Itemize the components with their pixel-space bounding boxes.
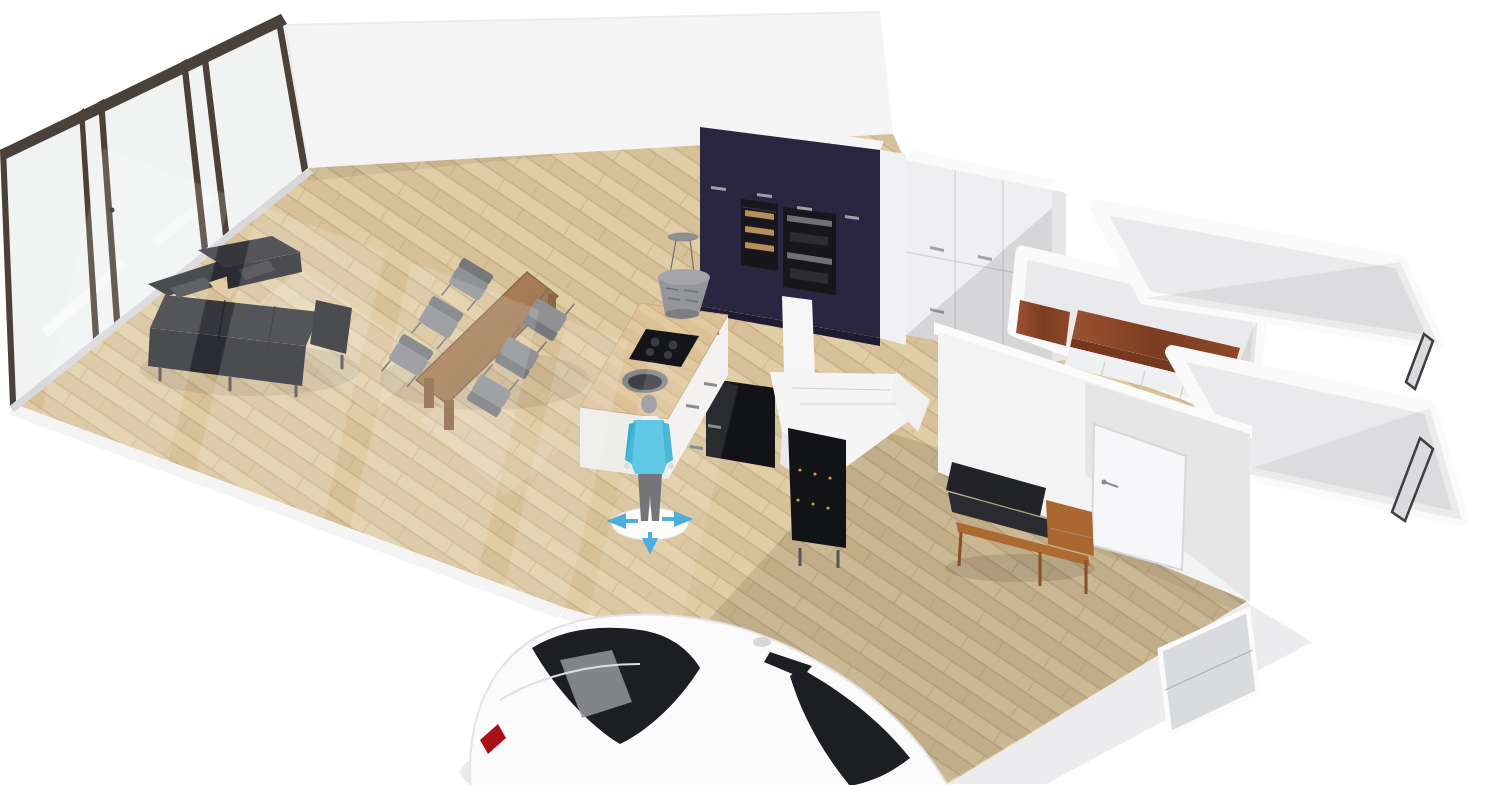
tall-white-unit[interactable] [880, 150, 906, 345]
hood-top [658, 269, 710, 285]
wine-cooler[interactable] [741, 199, 778, 271]
double-oven[interactable] [783, 207, 836, 295]
hood-bottom [665, 309, 699, 319]
hood-ceiling-disc [668, 233, 698, 242]
floor-planner-stage [0, 0, 1490, 785]
car-mirror [753, 637, 771, 647]
floor-plan-3d-viewport[interactable] [0, 0, 1490, 785]
